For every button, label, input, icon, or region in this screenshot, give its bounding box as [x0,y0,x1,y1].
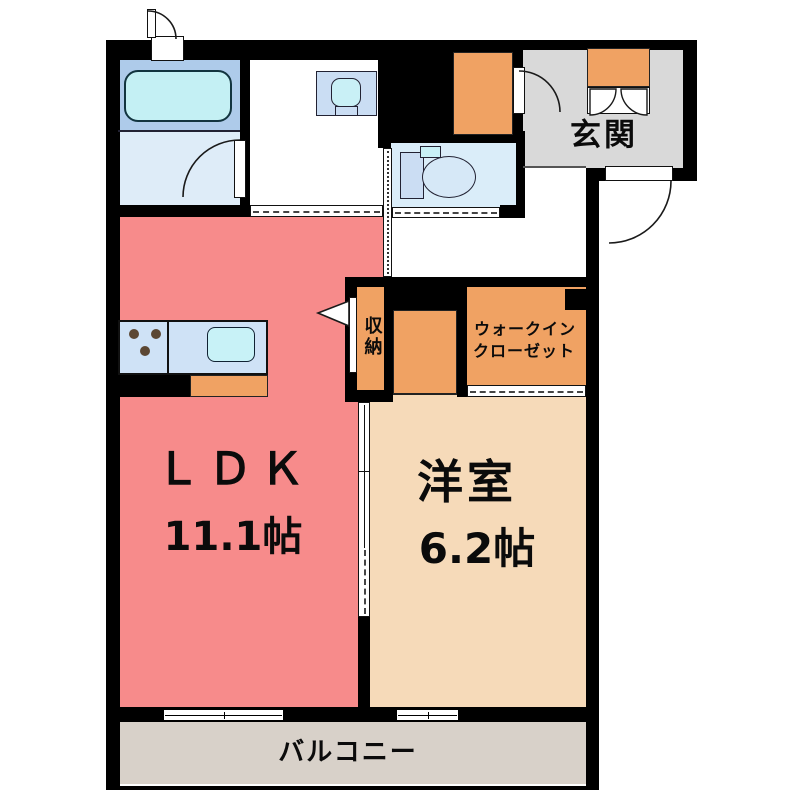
kitchen-base-cabinet [190,375,268,397]
entrance-door-opening [605,166,673,181]
shoe-cabinet-doors [587,87,650,114]
wall-entrance-right [683,40,697,181]
kitchen-sink [207,327,255,362]
hall-ldk-sliding-door [383,148,392,277]
toilet-lid [420,146,441,158]
kitchen-base-dark [118,375,190,397]
wall-toilet-door-side [500,205,525,218]
balcony-edge-line [106,786,599,790]
toilet-bowl [422,156,476,198]
western-room-size-label: 6.2帖 [419,527,535,571]
bathtub [124,70,232,122]
walk-in-closet-label-line1: ウォークイン [474,322,576,339]
entrance-door-arc [609,181,671,243]
wall-partition-lower [358,617,370,710]
ldk-size-label: 11.1帖 [164,516,303,558]
western-balcony-window [395,708,460,722]
bath-divider-line [118,130,240,132]
stove-burner-2 [151,329,161,339]
walk-in-closet-notch [565,289,586,310]
wall-bath-bottom [118,205,250,217]
ldk-western-sliding-door [358,402,370,617]
wall-closet-mid-top [393,277,457,310]
balcony-label: バルコニー [278,739,417,766]
wall-closet-inner2 [457,277,467,397]
shoe-cabinet [587,48,650,87]
walk-in-closet-label-line2: クローゼット [473,344,575,361]
middle-closet-floor [393,310,457,395]
kitchen-counter-divider [167,320,169,375]
stove-burner-1 [129,329,139,339]
entrance-step-line [523,166,586,168]
floorplan: ＬＤＫ 11.1帖 洋室 6.2帖 玄関 収納 ウォークイン クローゼット バル… [0,0,800,800]
toilet-tank [400,152,424,199]
washroom-sliding-door [250,205,383,217]
entrance-label: 玄関 [570,120,638,153]
bathroom-floor-lower [118,132,240,207]
vanity-front [335,106,358,116]
wall-washroom-right [378,60,391,148]
entrance-storage-box [453,52,513,135]
storage-label: 収納 [362,316,381,358]
western-room-label: 洋室 [417,458,517,506]
vanity-bowl [331,78,361,107]
wall-right-lower [586,168,599,788]
service-door-opening [151,36,184,61]
service-door-leaf [147,9,156,38]
toilet-sliding-door [392,207,500,218]
ldk-balcony-window [162,708,285,722]
storage-closet-door [349,297,357,373]
bathroom-door-leaf [234,140,246,198]
entrance-storage-door-leaf [513,67,525,114]
stove-burner-3 [140,346,150,356]
ldk-label: ＬＤＫ [156,447,312,493]
wic-sliding-door [467,385,586,397]
wall-storage-bottom [345,388,393,402]
wall-closet-inner1 [384,277,393,402]
wall-left [106,40,120,790]
